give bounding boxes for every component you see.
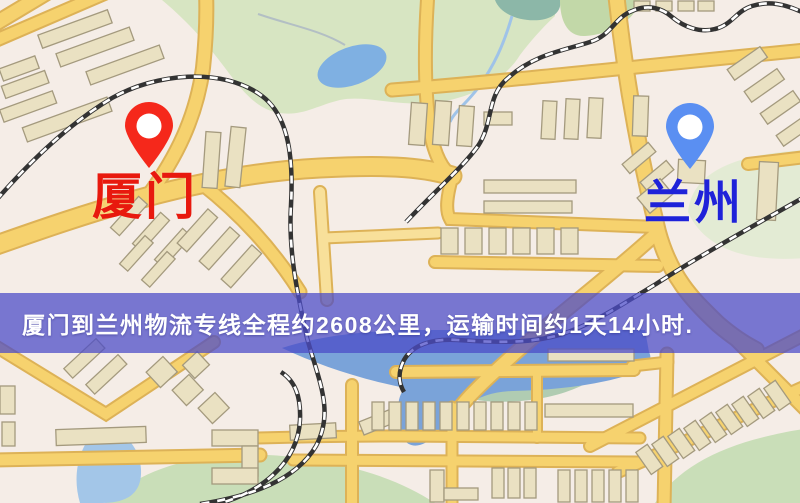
destination-label: 兰州 bbox=[644, 179, 744, 226]
map-canvas bbox=[0, 0, 800, 503]
destination-marker[interactable] bbox=[665, 102, 715, 170]
pin-hole bbox=[678, 115, 703, 140]
pin-hole bbox=[137, 114, 162, 139]
origin-marker[interactable] bbox=[124, 101, 174, 169]
origin-label: 厦门 bbox=[92, 172, 198, 222]
map-pin-icon bbox=[124, 101, 174, 169]
route-info-text: 厦门到兰州物流专线全程约2608公里，运输时间约1天14小时. bbox=[22, 306, 693, 340]
map-view[interactable]: 厦门 兰州 厦门到兰州物流专线全程约2608公里，运输时间约1天14小时. bbox=[0, 0, 800, 503]
route-info-banner: 厦门到兰州物流专线全程约2608公里，运输时间约1天14小时. bbox=[0, 293, 800, 353]
map-pin-icon bbox=[665, 102, 715, 170]
